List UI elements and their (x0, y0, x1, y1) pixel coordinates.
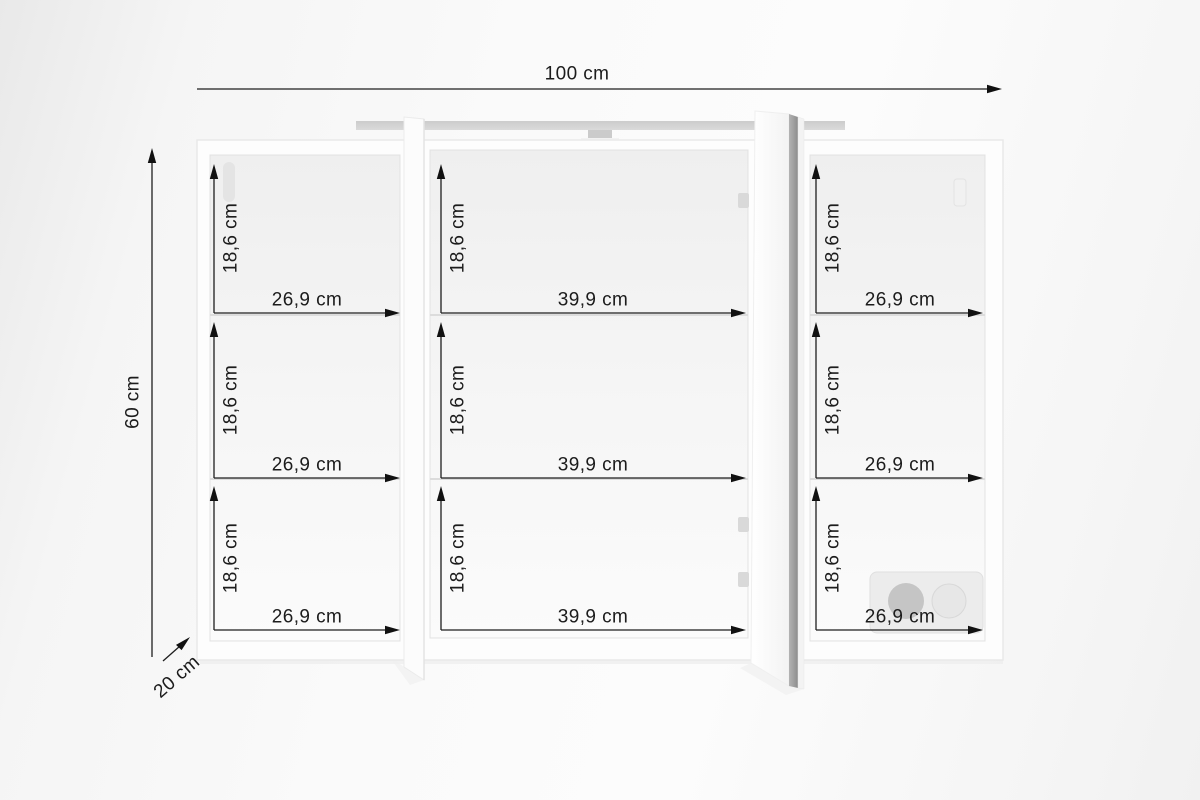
cabinet-shadow (200, 655, 1003, 695)
compartment-height-label: 18,6 cm (222, 203, 241, 273)
overall-width-dimension (197, 85, 1002, 93)
compartment-width-label: 39,9 cm (558, 456, 628, 475)
compartment-height-label: 18,6 cm (449, 203, 468, 273)
middle-section-interior (430, 150, 748, 638)
compartment-width-label: 26,9 cm (272, 291, 342, 310)
open-door-edge-left (404, 117, 424, 680)
compartment-height-label: 18,6 cm (222, 365, 241, 435)
compartment-height-label: 18,6 cm (222, 523, 241, 593)
compartment-width-label: 26,9 cm (865, 456, 935, 475)
compartment-width-label: 26,9 cm (272, 608, 342, 627)
compartment-width-label: 26,9 cm (865, 608, 935, 627)
compartment-height-label: 18,6 cm (824, 203, 843, 273)
compartment-height-label: 18,6 cm (449, 523, 468, 593)
compartment-height-label: 18,6 cm (824, 365, 843, 435)
overall-height-label: 60 cm (124, 375, 143, 429)
mirror-cabinet-dimension-diagram: 100 cm 60 cm 20 cm 18,6 cm 26,9 cm 18,6 … (0, 0, 1200, 800)
compartment-width-label: 39,9 cm (558, 608, 628, 627)
overall-width-label: 100 cm (545, 65, 610, 84)
compartment-height-label: 18,6 cm (449, 365, 468, 435)
compartment-height-label: 18,6 cm (824, 523, 843, 593)
compartment-width-label: 26,9 cm (272, 456, 342, 475)
overall-height-dimension (148, 148, 156, 657)
compartment-width-label: 26,9 cm (865, 291, 935, 310)
cabinet-body (197, 140, 1003, 660)
open-door-mirror-right (751, 111, 804, 689)
compartment-width-label: 39,9 cm (558, 291, 628, 310)
